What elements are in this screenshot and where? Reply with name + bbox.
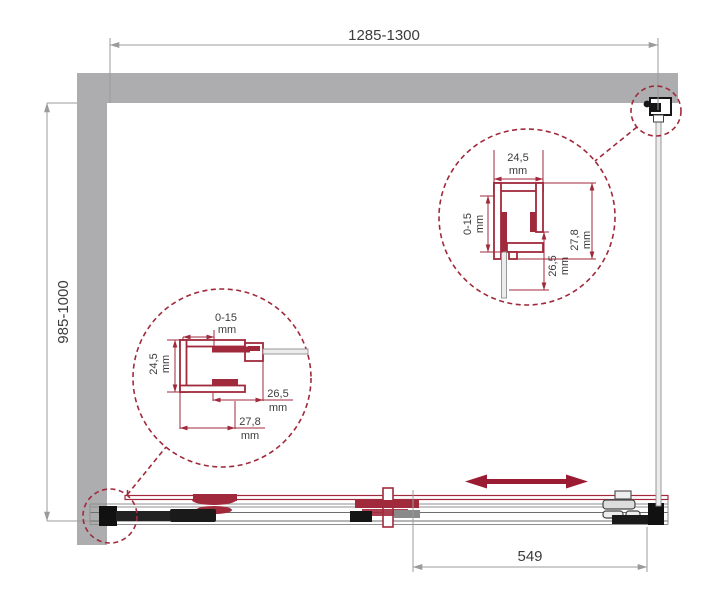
callout-leader-bottom-left [127,447,166,495]
detail-bottom-left: 0-15 mm 24,5 mm 26,5 mm 27,8 mm [133,289,311,467]
detail-tr-inner-unit: mm [559,257,571,275]
dim-door-width-label: 549 [517,548,542,565]
detail-tr-glass [502,252,507,298]
wall-profile-top-right [644,98,671,122]
shower-enclosure-plan-drawing: 1285-1300 985-1000 549 24,5 mm [0,0,728,600]
wall-top [77,73,678,103]
detail-bl-left-value: 24,5 [148,353,160,374]
walls [77,73,678,545]
detail-bl-right-unit: mm [269,402,287,414]
dim-width-label: 1285-1300 [348,27,420,44]
dim-depth-label: 985-1000 [55,280,72,343]
detail-bl-bottom-value: 27,8 [239,416,260,428]
detail-bl-left-unit: mm [160,355,172,373]
detail-tr-top-value: 24,5 [507,152,528,164]
detail-tr-outer-unit: mm [581,231,593,249]
callout-leader-top-right [595,127,637,161]
side-glass-panel [656,117,661,506]
detail-tr-top-unit: mm [509,165,527,177]
technical-drawing-canvas: 1285-1300 985-1000 549 24,5 mm [0,0,728,600]
detail-bl-bottom-unit: mm [241,430,259,442]
detail-bl-top-unit: mm [218,324,236,336]
detail-top-right: 24,5 mm 0-15 mm 26,5 mm 27,8 mm [439,129,615,305]
detail-bl-glass [263,349,308,354]
detail-tr-left-value: 0-15 [462,213,474,235]
detail-tr-left-unit: mm [474,215,486,233]
wall-left [77,73,107,545]
detail-bl-top-value: 0-15 [215,312,237,324]
detail-bl-right-value: 26,5 [267,388,288,400]
detail-tr-outer-value: 27,8 [569,229,581,250]
slide-direction-arrow [465,475,588,489]
